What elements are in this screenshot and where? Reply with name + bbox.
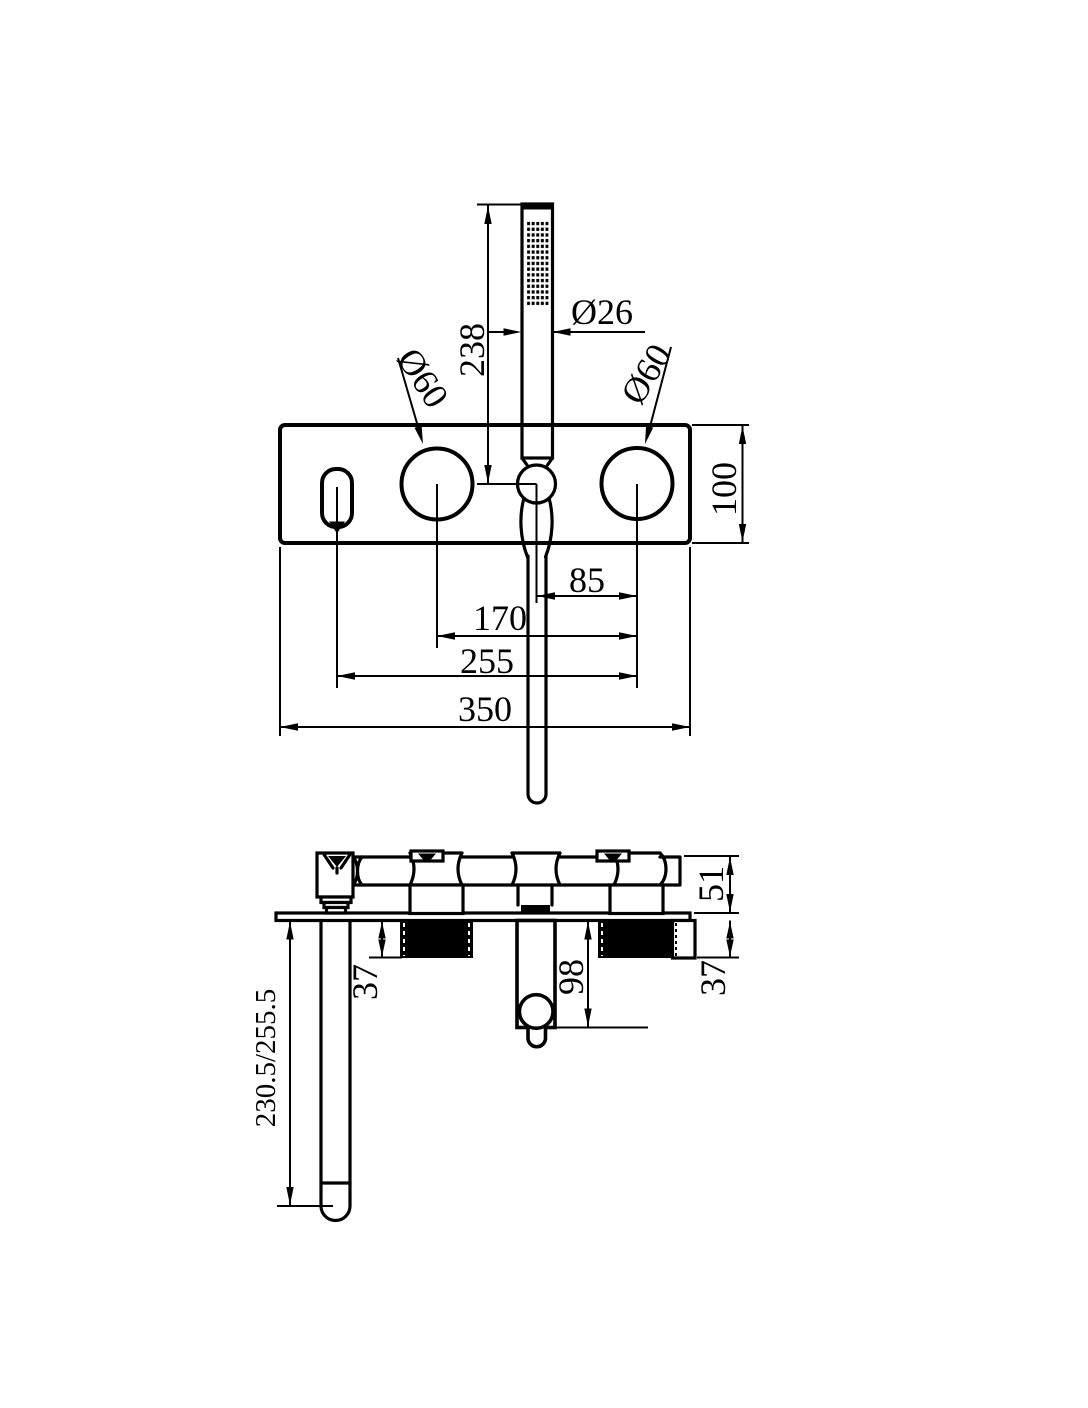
arrowhead (619, 672, 637, 679)
dim-label-dia60-left: Ø60 (389, 341, 456, 415)
left-handle-base (410, 885, 463, 914)
arrowhead (584, 922, 591, 940)
dim-right-valve-depth: 37 (693, 921, 739, 997)
spray-face (527, 221, 550, 306)
arrowhead (378, 922, 385, 939)
arrowhead (504, 328, 522, 335)
dim-spout-to-right-handle: 255 (337, 641, 637, 681)
holder-column (518, 885, 552, 905)
arrowhead (437, 632, 455, 639)
arrowhead (739, 426, 746, 444)
dim-label-dia26: Ø26 (571, 292, 633, 332)
dim-hose-to-right-handle: 85 (537, 560, 637, 600)
dim-label-170: 170 (473, 598, 527, 638)
dim-handshower-diameter: Ø26 (488, 292, 645, 336)
arrowhead (584, 1009, 591, 1027)
arrowhead (378, 940, 385, 957)
holder-seal (521, 905, 550, 914)
right-handle-base (610, 885, 663, 914)
arrowhead (672, 723, 690, 730)
dim-label-255: 255 (460, 641, 514, 681)
left-valve-body (400, 921, 473, 959)
dim-left-valve-depth: 37 (345, 921, 402, 1001)
right-valve-body (598, 921, 674, 959)
arrowhead (484, 465, 491, 483)
arrowhead (484, 206, 491, 224)
arrowhead (641, 426, 653, 445)
dim-label-350: 350 (458, 689, 512, 729)
dim-label-51: 51 (691, 866, 731, 902)
arrowhead (286, 1187, 293, 1205)
arrowhead (414, 426, 426, 445)
arrowhead (739, 524, 746, 542)
dim-body-projection: 51 (684, 856, 739, 913)
right-valve-extension (673, 921, 696, 959)
dim-label-dia60-right: Ø60 (613, 337, 679, 411)
technical-drawing-page: 238 Ø26 Ø60 Ø60 100 (0, 0, 1088, 1408)
dim-label-37-right: 37 (693, 960, 733, 996)
arrowhead (286, 922, 293, 940)
spout-rib (327, 908, 346, 914)
mixer-body-side (317, 851, 680, 914)
dim-label-100: 100 (704, 462, 744, 516)
top-view: 238 Ø26 Ø60 Ø60 100 (280, 203, 749, 803)
dim-handle-spacing: 170 (437, 598, 637, 640)
arrowhead (337, 672, 355, 679)
dim-label-85: 85 (569, 560, 605, 600)
mixer-dimension-drawing: 238 Ø26 Ø60 Ø60 100 (0, 0, 1088, 1408)
dim-label-98: 98 (551, 959, 591, 995)
label-left-handle-diameter: Ø60 (389, 341, 456, 445)
side-view: 51 37 37 98 (250, 851, 739, 1221)
dim-label-238: 238 (452, 323, 492, 377)
dim-label-37-left: 37 (345, 964, 385, 1000)
arrowhead (280, 723, 298, 730)
holder-housing-group (517, 921, 555, 1047)
hose-ball-joint (519, 995, 553, 1029)
arrowhead (726, 940, 733, 957)
dim-plate-height: 100 (692, 425, 749, 543)
arrowhead (619, 632, 637, 639)
arrowhead (619, 592, 637, 599)
arrowhead (553, 328, 571, 335)
arrowhead (726, 922, 733, 939)
holder-spool-side (512, 853, 560, 885)
dim-handshower-length: 238 (452, 205, 521, 485)
dim-label-spout-reach: 230.5/255.5 (250, 989, 282, 1128)
label-right-handle-diameter: Ø60 (613, 337, 679, 445)
